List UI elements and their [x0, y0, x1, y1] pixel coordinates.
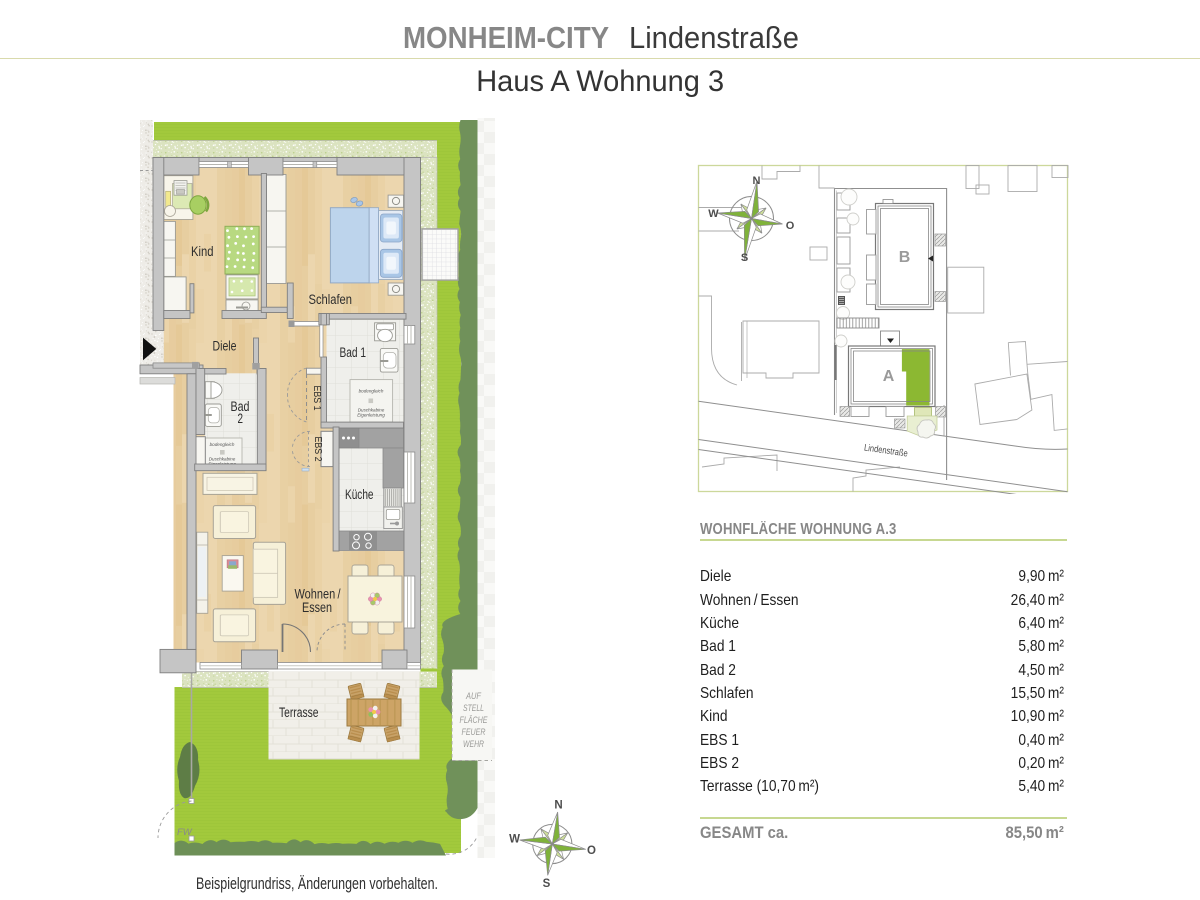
svg-text:Bad 1: Bad 1 [340, 345, 367, 360]
svg-text:FLÄCHE: FLÄCHE [460, 715, 488, 726]
svg-text:W: W [708, 208, 719, 220]
svg-text:A: A [883, 368, 895, 385]
svg-text:O: O [587, 845, 596, 857]
svg-text:N: N [554, 800, 562, 812]
svg-text:O: O [786, 220, 795, 232]
svg-text:bodengleich: bodengleich [359, 389, 384, 394]
svg-text:2: 2 [238, 411, 244, 426]
svg-text:AUF: AUF [465, 691, 482, 702]
svg-text:B: B [899, 249, 911, 266]
svg-text:bodengleich: bodengleich [210, 442, 235, 447]
svg-text:STELL: STELL [463, 703, 484, 714]
svg-text:N: N [753, 175, 761, 187]
svg-text:Eigenleistung: Eigenleistung [357, 413, 385, 418]
svg-text:S: S [741, 252, 748, 264]
svg-text:WEHR: WEHR [463, 739, 484, 750]
svg-text:Küche: Küche [345, 487, 374, 502]
svg-text:FW: FW [177, 827, 193, 838]
svg-text:W: W [509, 834, 520, 846]
svg-text:FEUER: FEUER [462, 727, 486, 738]
svg-text:EBS 1: EBS 1 [311, 386, 322, 411]
svg-text:EBS 2: EBS 2 [312, 437, 323, 462]
svg-text:Diele: Diele [213, 339, 237, 354]
svg-text:Terrasse: Terrasse [279, 705, 319, 720]
svg-text:S: S [543, 878, 551, 890]
svg-text:Kind: Kind [191, 244, 214, 259]
svg-text:Schlafen: Schlafen [309, 292, 353, 307]
svg-text:Essen: Essen [302, 600, 332, 615]
